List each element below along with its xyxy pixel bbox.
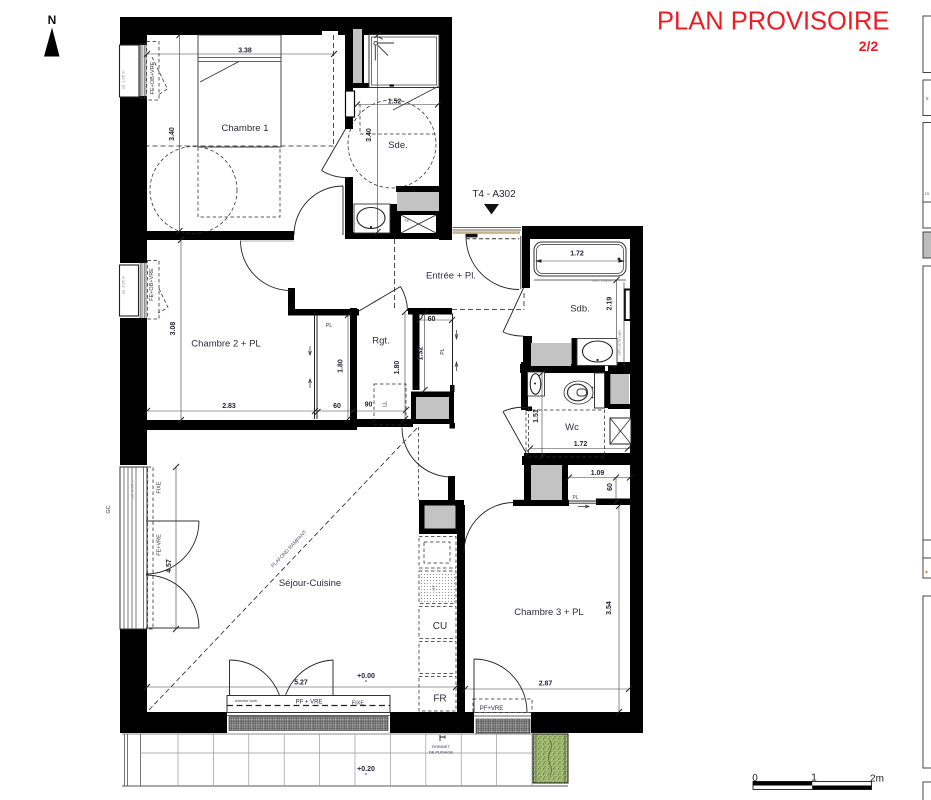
- svg-text:PF + VRE: PF + VRE: [296, 700, 323, 706]
- svg-text:FE+OB+VRE: FE+OB+VRE: [149, 268, 155, 301]
- svg-text:FE+VRE: FE+VRE: [157, 534, 163, 556]
- svg-text:15: 15: [925, 191, 930, 196]
- svg-text:1.72: 1.72: [570, 251, 584, 258]
- svg-text:60: 60: [607, 483, 614, 491]
- svg-text:2.83: 2.83: [222, 403, 236, 410]
- svg-text:2.19: 2.19: [607, 297, 614, 311]
- svg-text:60: 60: [428, 316, 436, 323]
- svg-text:Wc: Wc: [565, 422, 579, 433]
- svg-text:PF+VRE: PF+VRE: [480, 706, 504, 712]
- svg-text:+0.20: +0.20: [357, 766, 375, 773]
- svg-text:Sdb.: Sdb.: [570, 304, 590, 315]
- svg-text:Rgt.: Rgt.: [372, 336, 389, 347]
- svg-text:FIXE: FIXE: [157, 481, 163, 494]
- svg-text:2/2: 2/2: [859, 38, 879, 54]
- svg-text:Entrée + Pl.: Entrée + Pl.: [426, 271, 476, 282]
- svg-text:te: te: [618, 429, 621, 433]
- svg-text:marche bois: marche bois: [235, 698, 257, 703]
- svg-text:5.27: 5.27: [294, 680, 308, 687]
- svg-text:4.57: 4.57: [166, 559, 173, 573]
- svg-text:3.40: 3.40: [366, 128, 373, 142]
- svg-text:alt. 1.05 m: alt. 1.05 m: [121, 275, 126, 294]
- svg-text:FR: FR: [433, 694, 446, 705]
- svg-text:+0.00: +0.00: [357, 673, 375, 680]
- svg-text:TE: TE: [404, 218, 409, 223]
- svg-text:alt. 0.50 m: alt. 0.50 m: [130, 479, 135, 498]
- svg-text:ROBINET: ROBINET: [432, 744, 450, 749]
- svg-text:2m: 2m: [870, 774, 884, 785]
- svg-text:PLAN PROVISOIRE: PLAN PROVISOIRE: [657, 8, 889, 36]
- svg-text:1.09: 1.09: [591, 470, 605, 477]
- svg-text:2.87: 2.87: [539, 681, 553, 688]
- svg-text:HT: HT: [431, 585, 436, 591]
- svg-text:PL: PL: [440, 348, 446, 354]
- svg-text:GC: GC: [106, 505, 112, 513]
- svg-text:Chambre 1: Chambre 1: [222, 123, 269, 134]
- svg-text:DE PUISAGE: DE PUISAGE: [429, 750, 454, 755]
- svg-text:1.72: 1.72: [574, 441, 588, 448]
- svg-text:1.80: 1.80: [338, 359, 345, 373]
- svg-text:Séjour-Cuisine: Séjour-Cuisine: [279, 578, 341, 589]
- svg-text:cadre baignoire: cadre baignoire: [592, 279, 614, 283]
- svg-text:PL: PL: [573, 495, 579, 501]
- svg-text:FE+OB+VRE: FE+OB+VRE: [150, 61, 156, 94]
- svg-text:LL: LL: [383, 401, 389, 407]
- svg-text:CU: CU: [433, 621, 447, 632]
- svg-text:1.80: 1.80: [394, 361, 401, 375]
- svg-text:Chambre 2 + PL: Chambre 2 + PL: [191, 339, 260, 350]
- svg-text:3.54: 3.54: [606, 601, 613, 615]
- svg-text:90: 90: [365, 402, 373, 409]
- svg-text:T4 - A302: T4 - A302: [472, 189, 516, 200]
- svg-text:3.38: 3.38: [238, 48, 252, 55]
- svg-text:3.40: 3.40: [169, 127, 176, 141]
- svg-text:Chambre 3 + PL: Chambre 3 + PL: [514, 607, 583, 618]
- svg-text:alt. 1.05 m: alt. 1.05 m: [121, 70, 126, 89]
- svg-text:PL: PL: [326, 323, 332, 329]
- svg-text:60: 60: [333, 403, 341, 410]
- svg-text:1.51: 1.51: [533, 409, 540, 423]
- svg-text:N: N: [48, 13, 57, 27]
- svg-text:Sde.: Sde.: [388, 140, 408, 151]
- svg-text:coffre cache tuyau: coffre cache tuyau: [618, 330, 622, 356]
- svg-text:1.32: 1.32: [418, 347, 425, 361]
- svg-text:1.52: 1.52: [388, 99, 402, 106]
- svg-text:3.08: 3.08: [170, 322, 177, 336]
